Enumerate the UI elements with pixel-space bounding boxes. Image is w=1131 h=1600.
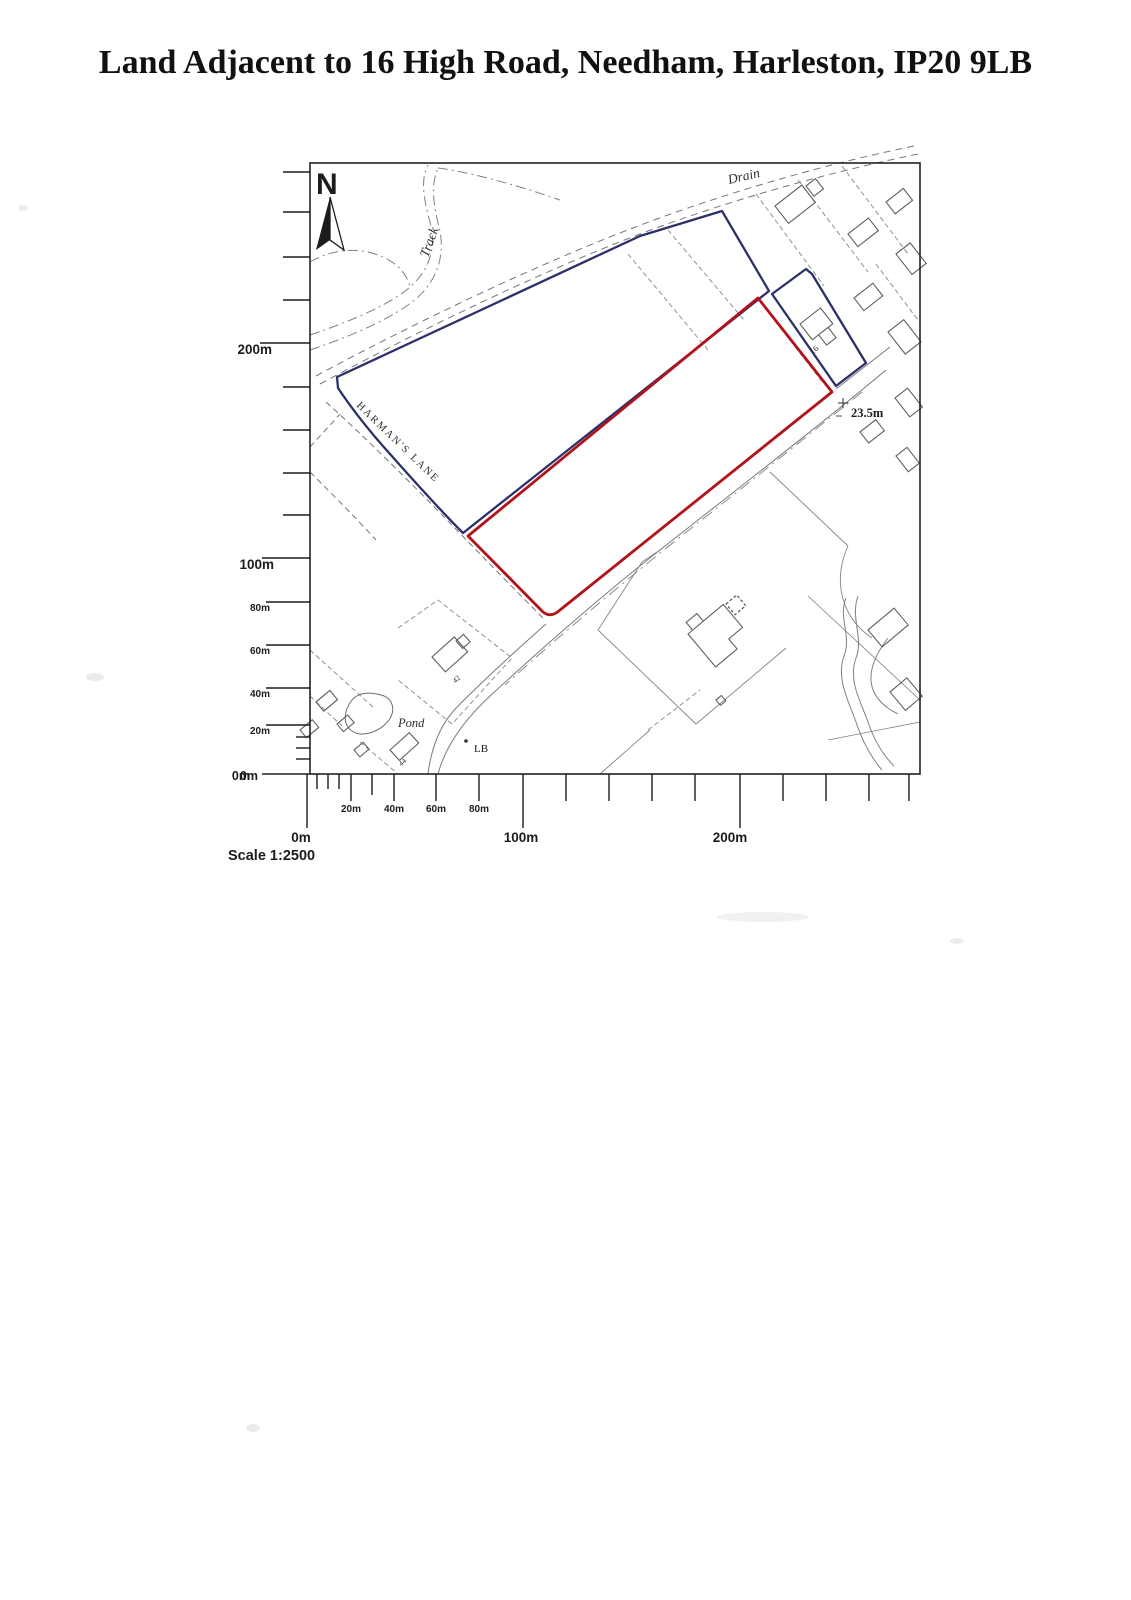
stream-lines: [808, 596, 920, 770]
track-lines: [310, 165, 560, 350]
north-arrow-right-half: [330, 197, 344, 250]
parcel-divider-lines: [310, 166, 918, 774]
house-16-label: 16: [807, 343, 820, 356]
drain-label: Drain: [725, 165, 761, 187]
scale-ratio-text: Scale 1:2500: [228, 848, 315, 864]
bottom-label-0m: 0m: [291, 830, 311, 845]
blue-ownership-boundary: [337, 211, 866, 533]
pond-label: Pond: [397, 716, 425, 730]
bottom-label-200m: 200m: [713, 830, 748, 845]
big-barn-outline: [682, 597, 751, 667]
blue-boundary-plot16: [772, 269, 866, 386]
house-44-outline: [390, 733, 419, 761]
left-label-60m: 60m: [250, 646, 270, 657]
left-label-100m: 100m: [239, 557, 274, 572]
left-scale-ticks: [260, 172, 310, 759]
road-casings: [428, 347, 890, 774]
track-label: Track: [417, 224, 442, 259]
left-label-20m: 20m: [250, 726, 270, 737]
north-arrow-left-half: [316, 197, 330, 250]
red-site-boundary: [468, 298, 832, 615]
blue-boundary-field: [337, 211, 769, 533]
letter-box-label: LB: [474, 743, 488, 755]
drain-line: [316, 146, 918, 384]
bottom-scale-ticks: [307, 774, 909, 828]
bottom-scale-labels: 0m 20m 40m 60m 80m 0m 100m 200m Scale 1:…: [228, 769, 747, 864]
pond-outline: [345, 693, 392, 734]
house-42-label: 42: [451, 673, 463, 685]
map-labels: Drain Track HARMAN'S LANE 23.5m Pond LB …: [354, 165, 884, 768]
scan-artifacts: [18, 205, 964, 1432]
left-label-40m: 40m: [250, 689, 270, 700]
house-44-label: 44: [397, 756, 409, 768]
lane-casing: [310, 402, 545, 620]
harmans-lane-label: HARMAN'S LANE: [354, 400, 442, 485]
left-label-80m: 80m: [250, 603, 270, 614]
left-scale-labels: 200m 100m 80m 60m 40m 20m 0m: [237, 342, 274, 783]
house-42-outline: [432, 637, 468, 672]
north-label: N: [316, 168, 338, 201]
bottom-label-60m: 60m: [426, 804, 446, 815]
field-boundary-lines: [598, 472, 872, 774]
building-outlines: [300, 179, 926, 761]
bottom-label-80m: 80m: [469, 804, 489, 815]
bottom-label-40m: 40m: [384, 804, 404, 815]
letter-box-dot: [464, 739, 468, 743]
bottom-label-100m: 100m: [504, 830, 539, 845]
site-plan-map: N 200m 100m 80m: [0, 0, 1131, 1600]
spot-height-label: 23.5m: [851, 406, 884, 420]
left-label-200m: 200m: [237, 342, 272, 357]
site-plan-page: Land Adjacent to 16 High Road, Needham, …: [0, 0, 1131, 1600]
bottom-axis-zero-label: 0m: [232, 769, 250, 783]
bottom-label-20m: 20m: [341, 804, 361, 815]
spot-height-mark: [836, 398, 848, 416]
base-map-linework: [310, 146, 920, 774]
north-arrow: N: [316, 168, 344, 250]
